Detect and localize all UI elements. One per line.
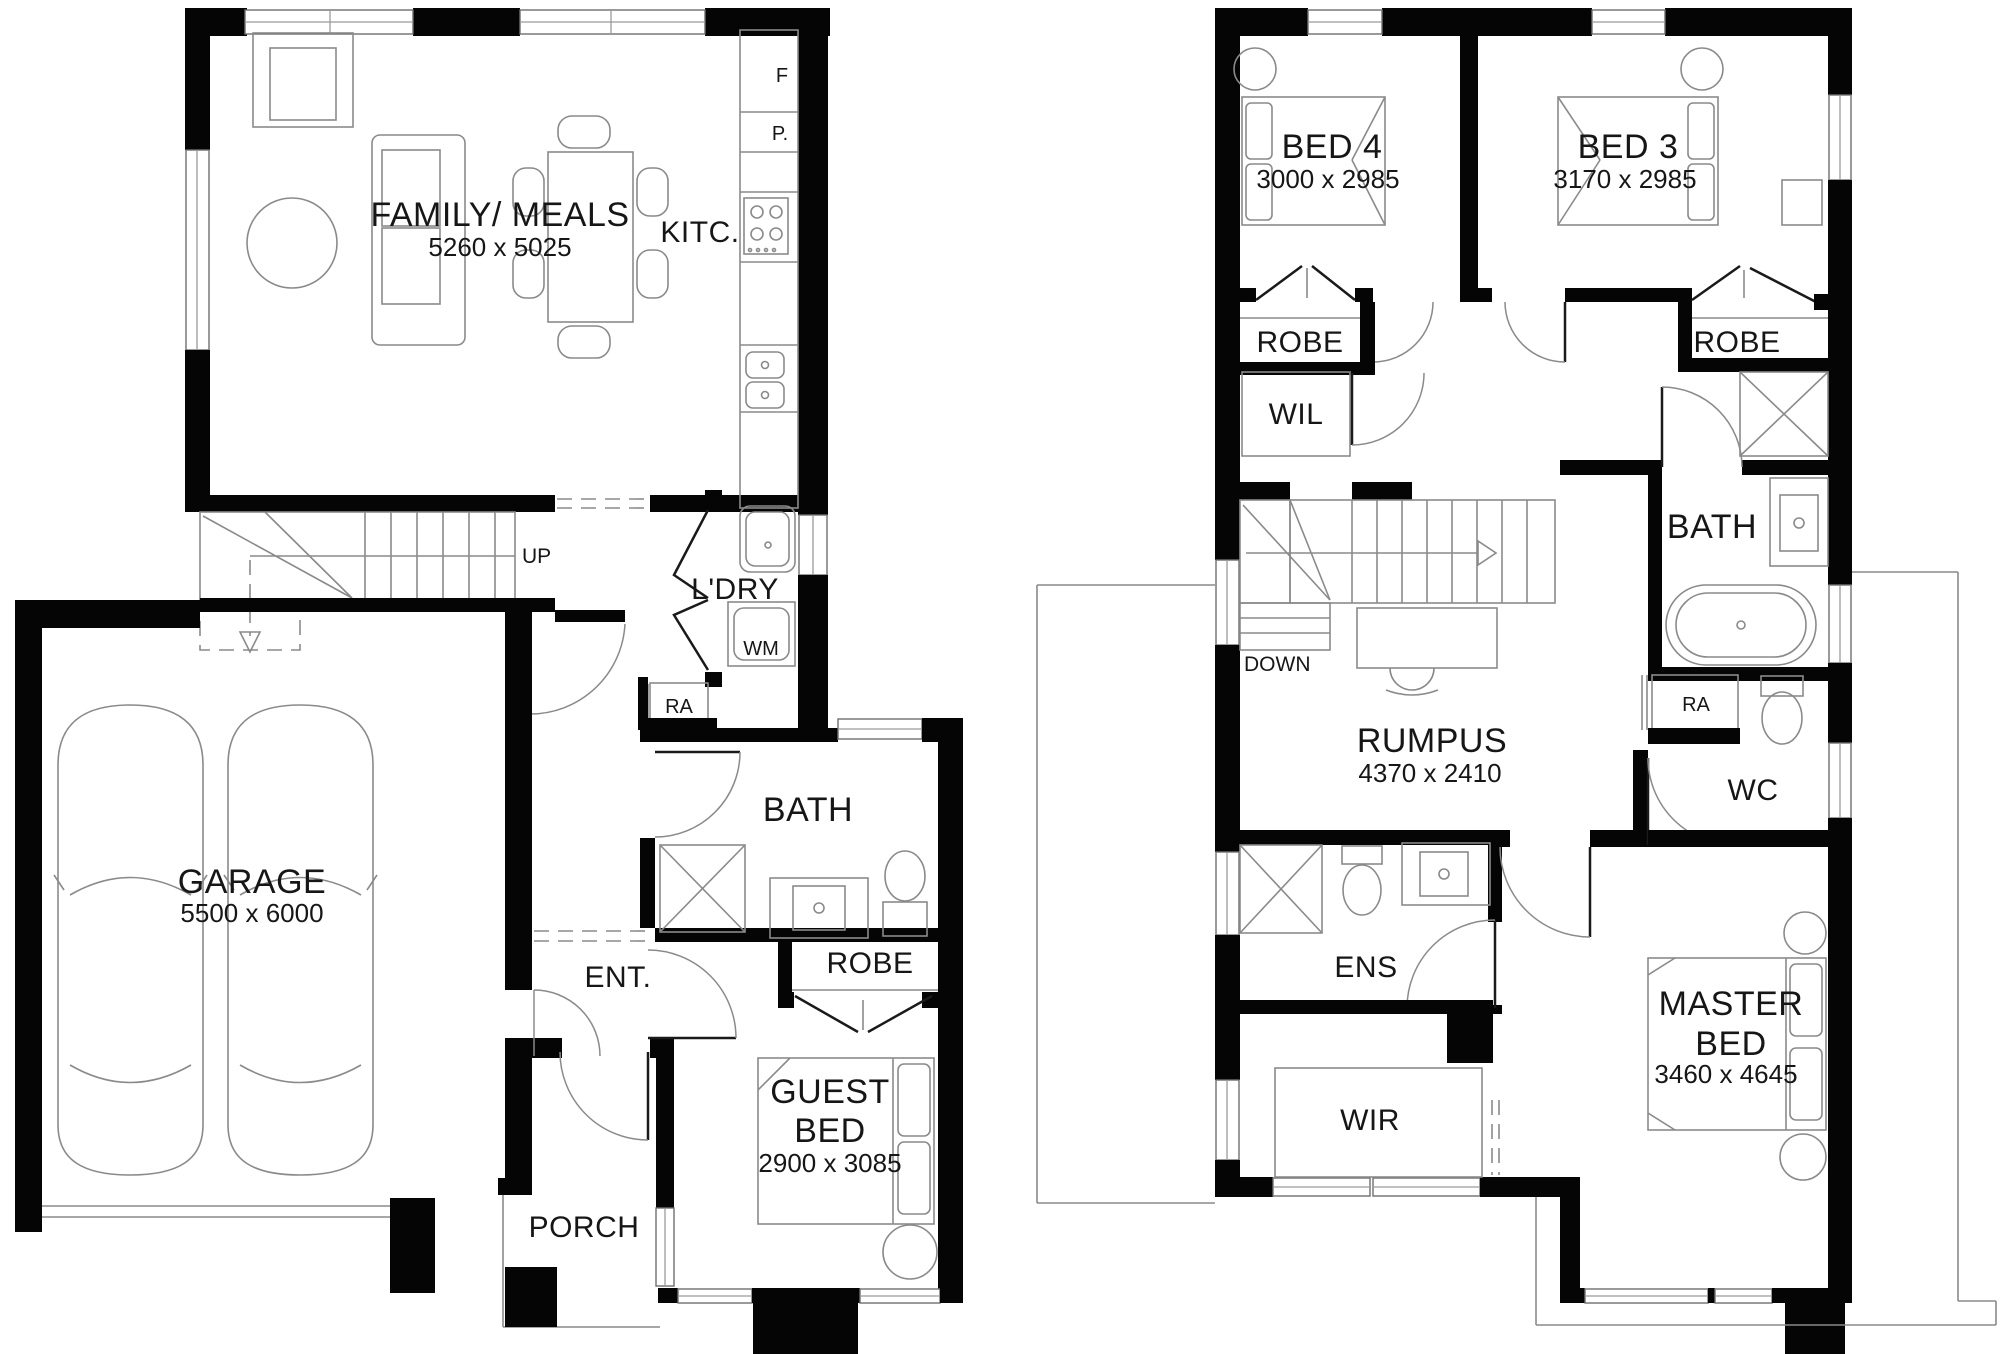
car-icon [224,705,377,1175]
master-bed-dims: 3460 x 4645 [1654,1059,1797,1089]
guest-door-swing [648,950,736,1038]
right-arrow-icon [1478,541,1496,565]
roof-outline [1037,572,1996,1325]
laundry-tub-icon [740,506,795,572]
kitchen-bench [740,30,798,508]
laundry-label: L'DRY [691,573,779,606]
window [1273,1178,1370,1196]
ensuite-room [1240,830,1502,1063]
ground-floor-plan: FAMILY/ MEALS 5260 x 5025 F P. [15,8,963,1354]
side-table-icon [883,1225,937,1279]
rumpus-label: RUMPUS [1357,722,1507,760]
stairs-up: UP [200,512,551,652]
master-bed-label1: MASTER [1659,985,1804,1023]
garage-dims: 5500 x 6000 [180,898,323,928]
window [838,719,922,739]
window [1829,95,1851,180]
wc-label: WC [1728,774,1779,807]
stairs-up-label: UP [522,545,551,568]
side-table-icon [1681,48,1723,90]
toilet-icon [1342,846,1382,915]
robe-ground-label: ROBE [826,947,913,980]
window [1715,1289,1772,1303]
window [1585,1289,1708,1303]
guest-bed-dims: 2900 x 3085 [758,1148,901,1178]
window [1373,1178,1480,1196]
floorplan-canvas: FAMILY/ MEALS 5260 x 5025 F P. [0,0,2000,1354]
porch-label: PORCH [529,1211,640,1244]
window [1829,743,1851,818]
window [799,515,827,575]
window [678,1289,752,1303]
bed4-dims: 3000 x 2985 [1256,164,1399,194]
pantry-label: P. [772,123,788,145]
return-air-first-label: RA [1682,694,1710,716]
vanity-icon [1402,843,1490,905]
window [1216,852,1239,935]
coffee-table-icon [247,198,337,288]
window [186,150,209,350]
stairs-down-label: DOWN [1244,653,1311,676]
bed3-room [1478,48,1828,372]
wc-room [1633,676,1852,847]
floorplan-page: FAMILY/ MEALS 5260 x 5025 F P. [0,0,2000,1354]
entry-label: ENT. [584,961,651,994]
bed4-door-swing [1373,302,1433,362]
window [1592,10,1665,34]
car-icon [54,705,207,1175]
side-table-icon [1234,48,1276,90]
side-table-icon [1780,1134,1826,1180]
bed3-door-swing [1505,302,1565,362]
first-floor-plan: BED 4 3000 x 2985 ROBE [1037,8,1996,1354]
toilet-icon [1761,676,1803,744]
hall-door-swing [530,624,625,714]
wil-label: WIL [1269,398,1324,431]
shower-icon [1240,845,1322,933]
ensuite-label: ENS [1334,951,1397,984]
bed4-room [1234,36,1478,375]
desk-icon [1357,608,1497,695]
bed4-label: BED 4 [1282,128,1383,166]
bed3-robe-label: ROBE [1693,326,1780,359]
rumpus-dims: 4370 x 2410 [1358,758,1501,788]
family-meals-dims: 5260 x 5025 [428,232,571,262]
linen-cupboard [1740,372,1828,456]
window [1216,1080,1239,1160]
bath-first-label: BATH [1667,508,1757,546]
laundry-door [674,600,708,670]
master-door-swing [1500,847,1590,937]
return-air-ground-label: RA [665,696,693,718]
shower-icon [660,845,745,932]
sink-icon [746,352,784,408]
kitchen-label: KITC. [660,216,739,249]
wir-label: WIR [1340,1104,1400,1137]
window [520,10,705,34]
master-bed-label2: BED [1695,1025,1766,1063]
wil-door-swing [1352,373,1424,445]
window [1216,560,1239,645]
bath-door-swing [1662,387,1742,467]
garage-label: GARAGE [178,863,326,901]
family-meals-label: FAMILY/ MEALS [370,196,629,234]
garage-walls [15,600,650,1293]
window [656,1208,674,1286]
window [245,10,413,34]
bathtub-icon [1666,585,1816,665]
window [1308,10,1382,34]
cooktop-icon [744,198,788,254]
bed4-robe-label: ROBE [1256,326,1343,359]
toilet-icon [883,851,927,936]
washing-machine-label: WM [743,638,779,660]
fridge-label: F [776,65,788,87]
window [1829,585,1851,663]
bath-door-swing [655,752,740,837]
guest-bed-label1: GUEST [770,1073,890,1111]
window [860,1289,940,1303]
bed3-label: BED 3 [1578,128,1679,166]
guest-bed-label2: BED [794,1112,865,1150]
side-table-icon [1784,912,1826,954]
vanity-icon [1770,478,1828,566]
bed3-dims: 3170 x 2985 [1553,164,1696,194]
bath-ground-label: BATH [763,791,853,829]
armchair-icon [253,33,353,127]
ens-door-swing [1407,920,1495,1008]
stairs-down: DOWN [1240,500,1555,695]
